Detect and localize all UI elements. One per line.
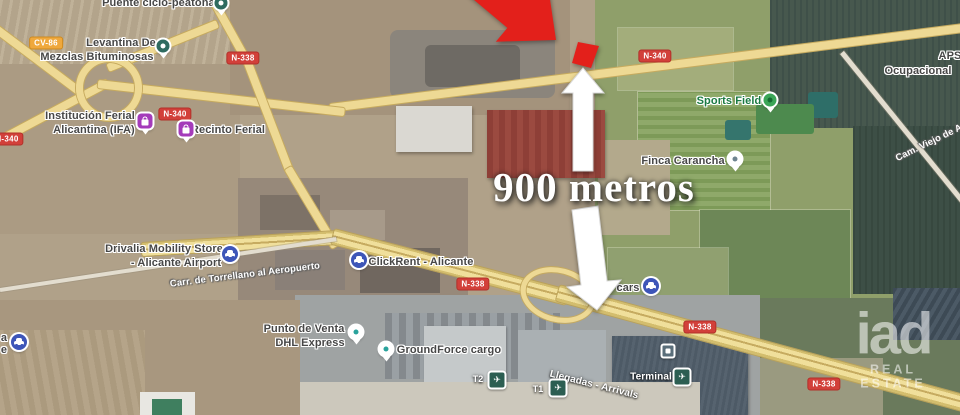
groundforce-pin-icon[interactable] (380, 343, 393, 356)
poi-label-puente[interactable]: Puente ciclo-peatonal (102, 0, 218, 9)
map-sports-pitch (756, 104, 814, 134)
distance-annotation: 900 metros (493, 163, 695, 211)
road-badge-n340-ifa: N-340 (158, 108, 191, 121)
brand-watermark: iad REAL ESTATE (856, 309, 931, 390)
poi-label-dhl-1[interactable]: Punto de Venta (264, 323, 345, 335)
satellite-map[interactable]: CV-86 N-338 N-340 N-340 N-340 N-338 N-33… (0, 0, 960, 415)
road-badge-n338-mid: N-338 (456, 278, 489, 291)
terminal-airplane-icon[interactable]: ✈ (673, 368, 692, 387)
terminal-t2-label[interactable]: T2 (473, 374, 484, 384)
poi-label-aps-2[interactable]: Ocupacional (884, 65, 951, 77)
map-green-roof (152, 399, 182, 415)
terminal-t1-label[interactable]: T1 (533, 384, 544, 394)
map-ifa-building (396, 106, 472, 152)
road-badge-n340-leftedge: N-340 (0, 133, 24, 146)
sports-field-pin-icon[interactable] (764, 94, 777, 107)
poi-label-drivalia-1[interactable]: Drivalia Mobility Store (105, 243, 223, 255)
edge-partial-label-2: e (1, 344, 7, 356)
poi-label-clickrent[interactable]: ClickRent - Alicante (369, 256, 474, 268)
poi-label-ifa-2[interactable]: Alicantina (IFA) (53, 124, 135, 136)
dhl-pin-icon[interactable] (350, 326, 363, 339)
poi-label-groundforce[interactable]: GroundForce cargo (397, 344, 501, 356)
brand-watermark-tagline: REAL ESTATE (856, 363, 931, 391)
finca-pin-icon[interactable] (729, 153, 742, 166)
clickrent-car-rental-icon[interactable] (351, 252, 367, 268)
road-badge-n338-bottom: N-338 (807, 378, 840, 391)
cars-rental-icon[interactable] (643, 278, 659, 294)
t2-airplane-icon[interactable]: ✈ (488, 371, 507, 390)
poi-label-levantina-2[interactable]: Mezclas Bituminosas (40, 51, 153, 63)
road-badge-n338-right: N-338 (683, 321, 716, 334)
road-badge-n340-right: N-340 (638, 50, 671, 63)
levantina-pin-icon[interactable] (157, 40, 170, 53)
brand-watermark-logo: iad (856, 309, 931, 358)
edge-partial-label-1: a (1, 332, 7, 344)
drivalia-car-rental-icon[interactable] (222, 246, 238, 262)
poi-label-aps-1[interactable]: APS (939, 50, 960, 62)
t1-airplane-icon[interactable]: ✈ (549, 379, 568, 398)
poi-label-levantina-1[interactable]: Levantina De (86, 37, 156, 49)
terminal-transit-icon[interactable] (661, 344, 676, 359)
recinto-shopping-pin-icon[interactable] (179, 122, 194, 137)
poi-label-dhl-2[interactable]: DHL Express (275, 337, 344, 349)
map-pond-2 (725, 120, 751, 140)
poi-label-sports-field[interactable]: Sports Field (697, 95, 762, 107)
ifa-shopping-pin-icon[interactable] (138, 114, 153, 129)
poi-label-cars-partial[interactable]: cars (616, 282, 639, 294)
poi-label-ifa-1[interactable]: Institución Ferial (45, 110, 135, 122)
road-badge-cv86: CV-86 (29, 37, 63, 50)
poi-label-recinto[interactable]: Recinto Ferial (191, 124, 265, 136)
poi-label-drivalia-2[interactable]: - Alicante Airport (131, 257, 221, 269)
road-badge-n338-top: N-338 (226, 52, 259, 65)
edge-car-rental-icon[interactable] (11, 334, 27, 350)
terminal-label[interactable]: Terminal (630, 372, 672, 383)
